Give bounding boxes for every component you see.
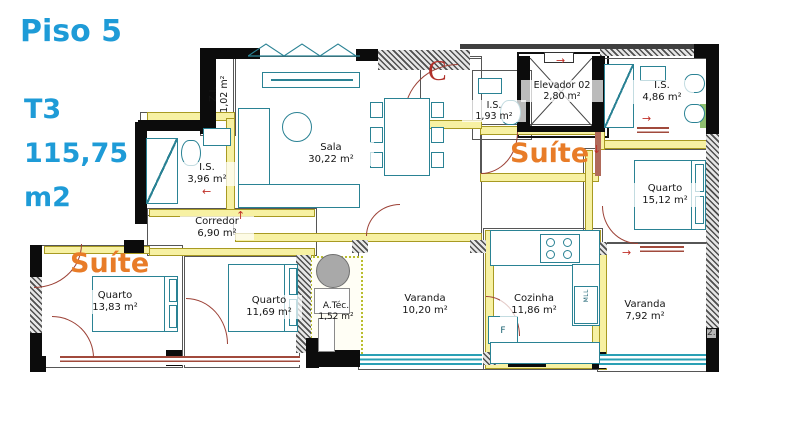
arrow-down-icon: ↓ [592, 144, 601, 155]
window-band [637, 127, 669, 133]
typology-label: T3 [24, 94, 61, 125]
pillow [289, 268, 297, 295]
coffee-table [282, 112, 312, 142]
total-area-unit: m2 [24, 182, 71, 213]
sofa [238, 184, 360, 208]
stove-burner [546, 250, 555, 259]
wall-hatch [352, 240, 368, 253]
chair [370, 127, 383, 143]
wall-yellow [480, 173, 599, 182]
wall-black [706, 46, 719, 134]
tv-line [271, 79, 353, 81]
label-zi: Z.I.1,02 m² [208, 62, 230, 126]
fridge: F [488, 316, 518, 344]
fridge-label: F [500, 326, 505, 336]
suite-label-right: Suíte [510, 138, 589, 169]
kitchen-counter [490, 342, 600, 364]
wall-black [517, 126, 605, 132]
label-quarto-suite1: Quarto13,83 m² [78, 290, 152, 314]
wall-black [30, 356, 46, 372]
window-band [60, 356, 300, 365]
water-heater [316, 254, 350, 288]
arrow-right-icon: → [642, 113, 651, 124]
total-area-value: 115,75 [24, 138, 128, 169]
stove-burner [563, 238, 572, 247]
technical-box [318, 318, 335, 352]
label-cozinha: Cozinha11,86 m² [500, 293, 568, 317]
suite-label-left: Suíte [70, 248, 149, 279]
dining-table [384, 98, 430, 176]
arrow-left-icon: ← [202, 186, 211, 197]
label-varanda2: Varanda7,92 m² [610, 299, 680, 323]
chair [431, 127, 444, 143]
pillow [169, 305, 177, 328]
label-varanda1: Varanda10,20 m² [388, 293, 462, 317]
wall-black [316, 350, 360, 367]
stove-burner [546, 238, 555, 247]
window-band [640, 246, 684, 255]
label-is-suite1: I.S.3,96 m² [178, 162, 236, 186]
window-zigzag [248, 42, 360, 58]
wall-line [460, 44, 710, 49]
label-atec: A.Téc.1,52 m² [312, 301, 360, 322]
chair [431, 152, 444, 168]
stove-burner [563, 250, 572, 259]
bathtub [146, 138, 178, 204]
sink [640, 66, 666, 81]
wall-hatch [706, 134, 719, 328]
wall-yellow [599, 140, 707, 149]
balcony-railing [599, 354, 706, 368]
wall-yellow [149, 248, 315, 256]
page-title: Piso 5 [20, 14, 122, 49]
wall-black [138, 120, 204, 131]
entrance-mark: C [428, 56, 447, 88]
label-quarto-mid: Quarto11,69 m² [236, 295, 302, 319]
sink [203, 128, 231, 146]
label-is-hall: I.S.1,93 m² [462, 100, 526, 122]
chair [431, 102, 444, 118]
dimension-fragment: 2. [707, 329, 716, 338]
arrow-right-icon: → [622, 247, 631, 258]
balcony-railing [360, 354, 482, 366]
bidet [684, 104, 705, 123]
dishwasher-label: MLL [583, 289, 590, 302]
sink [478, 78, 502, 94]
floor-plan-page: Piso 5 T3 115,75 m2 [0, 0, 804, 424]
tv-cabinet [262, 72, 360, 88]
wall-hatch [470, 240, 486, 253]
stove [540, 234, 580, 263]
arrow-right-icon: → [556, 55, 565, 66]
dishwasher: MLL [574, 286, 598, 324]
label-is-suite2: I.S.4,86 m² [630, 80, 694, 104]
arrow-up-icon: ↑ [236, 210, 245, 221]
label-sala: Sala30,22 m² [288, 142, 374, 166]
label-elevador: Elevador 022,80 m² [521, 80, 603, 102]
label-quarto-suite2: Quarto15,12 m² [630, 183, 700, 207]
pillow [169, 279, 177, 302]
chair [370, 102, 383, 118]
